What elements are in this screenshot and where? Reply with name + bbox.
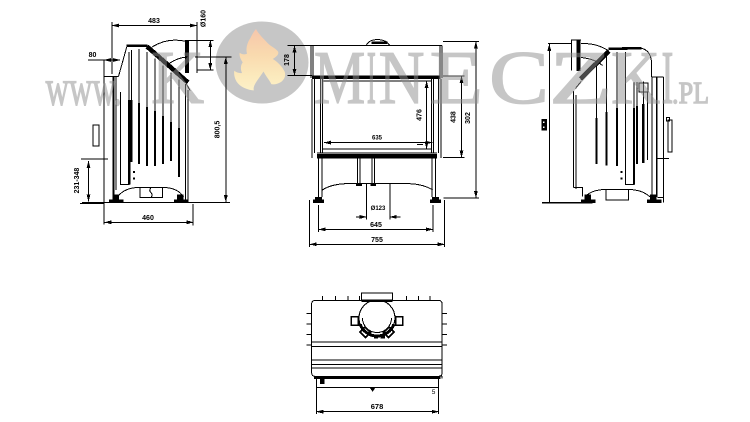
svg-text:K: K bbox=[611, 36, 660, 120]
svg-text:I: I bbox=[367, 36, 376, 120]
svg-text:483: 483 bbox=[148, 18, 160, 25]
svg-text:231-348: 231-348 bbox=[74, 168, 81, 194]
svg-text:800,5: 800,5 bbox=[215, 121, 222, 139]
svg-text:K: K bbox=[151, 36, 204, 120]
svg-text:178: 178 bbox=[284, 54, 291, 66]
svg-text:.PL: .PL bbox=[672, 75, 709, 110]
svg-text:635: 635 bbox=[372, 136, 383, 142]
svg-text:M: M bbox=[314, 36, 365, 120]
svg-text:755: 755 bbox=[371, 237, 383, 244]
svg-text:5: 5 bbox=[432, 389, 436, 396]
svg-text:C: C bbox=[489, 36, 549, 120]
svg-text:80: 80 bbox=[89, 52, 97, 59]
svg-text:678: 678 bbox=[371, 402, 384, 411]
svg-text:Z: Z bbox=[549, 36, 612, 120]
svg-text:www.: www. bbox=[46, 61, 122, 117]
svg-text:645: 645 bbox=[370, 222, 382, 229]
svg-text:N: N bbox=[379, 36, 425, 120]
svg-text:E: E bbox=[430, 36, 483, 120]
svg-text:460: 460 bbox=[142, 215, 154, 222]
svg-text:Ø160: Ø160 bbox=[201, 10, 208, 27]
svg-text:Ø123: Ø123 bbox=[371, 206, 386, 212]
